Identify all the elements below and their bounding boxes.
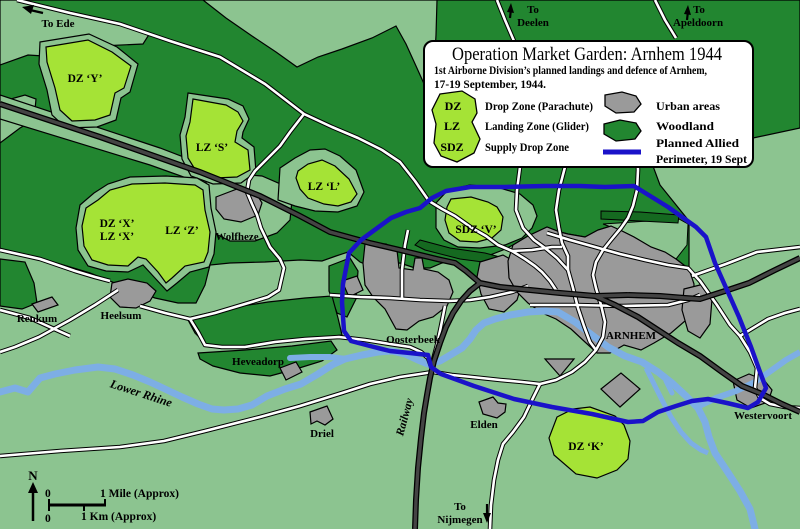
svg-text:Elden: Elden — [470, 419, 498, 431]
svg-text:17-19 September, 1944.: 17-19 September, 1944. — [434, 77, 546, 91]
svg-text:0: 0 — [45, 513, 51, 525]
svg-text:Heveadorp: Heveadorp — [232, 356, 284, 368]
svg-text:DZ ‘X’: DZ ‘X’ — [100, 218, 135, 230]
svg-text:Westervoort: Westervoort — [734, 410, 792, 422]
svg-text:To: To — [527, 4, 539, 16]
svg-text:Apeldoorn: Apeldoorn — [673, 17, 723, 29]
svg-text:ARNHEM: ARNHEM — [606, 330, 657, 342]
svg-text:LZ ‘X’: LZ ‘X’ — [100, 231, 134, 243]
svg-text:LZ ‘S’: LZ ‘S’ — [196, 142, 228, 154]
svg-text:SDZ ‘V’: SDZ ‘V’ — [455, 224, 496, 236]
svg-text:1 Km (Approx): 1 Km (Approx) — [81, 511, 156, 523]
svg-text:Landing Zone (Glider): Landing Zone (Glider) — [485, 119, 589, 133]
svg-text:SDZ: SDZ — [440, 140, 463, 154]
svg-text:Perimeter, 19 Sept: Perimeter, 19 Sept — [656, 152, 747, 166]
svg-text:To Ede: To Ede — [42, 18, 75, 30]
svg-text:Driel: Driel — [310, 428, 334, 440]
svg-text:Wolfheze: Wolfheze — [215, 231, 258, 243]
svg-text:Woodland: Woodland — [656, 119, 714, 133]
svg-text:0: 0 — [45, 488, 51, 500]
svg-text:DZ ‘Y’: DZ ‘Y’ — [68, 73, 103, 85]
svg-text:Oosterbeek: Oosterbeek — [386, 334, 441, 346]
svg-text:Nijmegen: Nijmegen — [437, 514, 482, 526]
svg-text:LZ ‘L’: LZ ‘L’ — [308, 181, 341, 193]
svg-text:Renkum: Renkum — [17, 313, 57, 325]
svg-text:Urban areas: Urban areas — [656, 99, 720, 113]
svg-text:Planned Allied: Planned Allied — [656, 136, 739, 150]
svg-text:N: N — [28, 468, 38, 483]
svg-text:Supply Drop Zone: Supply Drop Zone — [485, 140, 570, 154]
svg-text:To: To — [454, 501, 466, 513]
svg-text:LZ: LZ — [444, 119, 460, 133]
svg-text:DZ: DZ — [445, 99, 462, 113]
svg-text:To: To — [693, 4, 705, 16]
svg-text:LZ ‘Z’: LZ ‘Z’ — [165, 225, 199, 237]
svg-text:DZ ‘K’: DZ ‘K’ — [568, 441, 603, 453]
svg-text:1st Airborne Division’s planne: 1st Airborne Division’s planned landings… — [434, 63, 707, 77]
svg-text:1 Mile (Approx): 1 Mile (Approx) — [100, 488, 179, 500]
svg-text:Drop Zone (Parachute): Drop Zone (Parachute) — [485, 99, 593, 113]
svg-text:Deelen: Deelen — [517, 17, 549, 29]
svg-text:Operation Market Garden: Arnhe: Operation Market Garden: Arnhem 1944 — [452, 44, 722, 65]
svg-text:Heelsum: Heelsum — [101, 310, 142, 322]
